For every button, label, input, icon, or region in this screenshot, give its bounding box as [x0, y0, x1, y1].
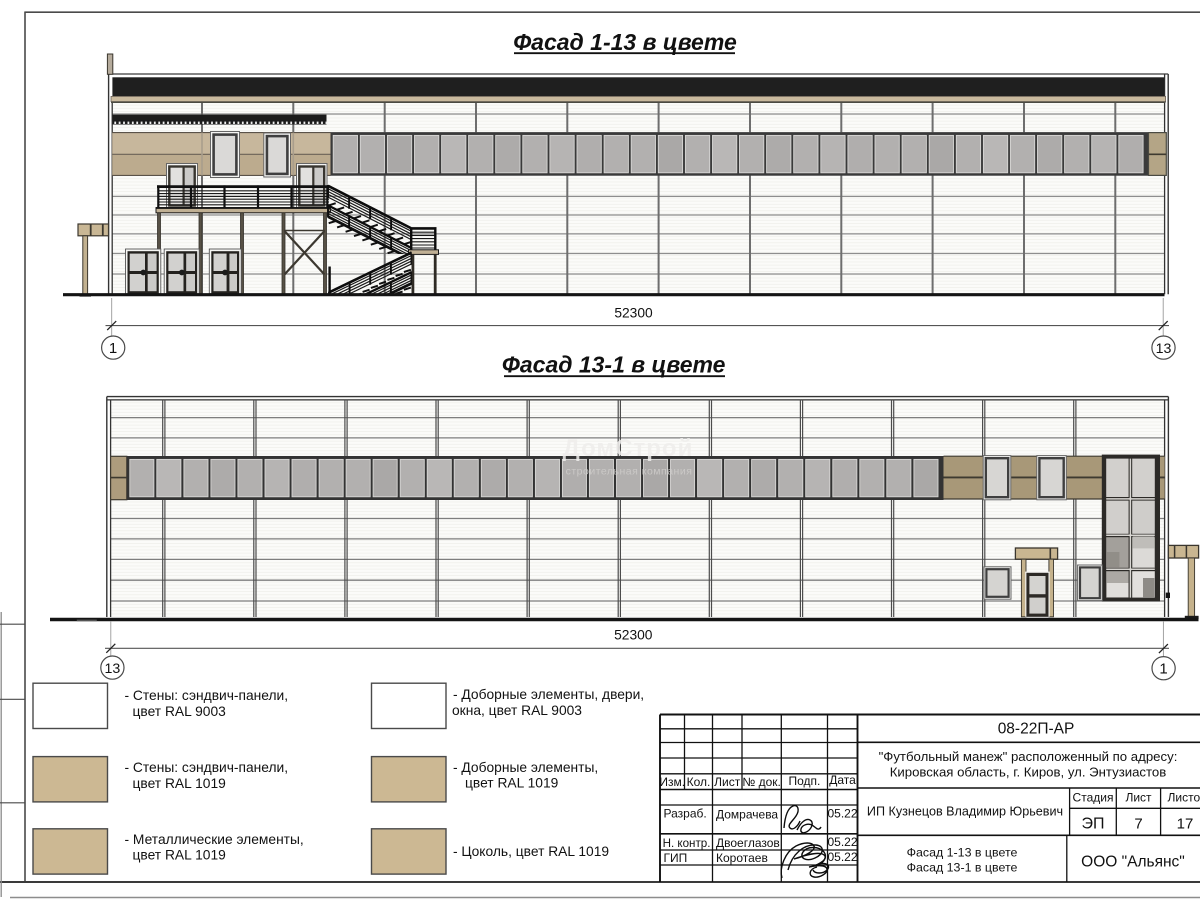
svg-text:цвет RAL 1019: цвет RAL 1019	[133, 848, 227, 863]
svg-text:Кировская область, г. Киров, у: Кировская область, г. Киров, ул. Энтузиа…	[890, 764, 1167, 779]
svg-text:- Доборные элементы, двери,: - Доборные элементы, двери,	[453, 687, 644, 702]
svg-text:05.22: 05.22	[827, 807, 857, 821]
svg-text:Фасад 1-13 в цвете: Фасад 1-13 в цвете	[513, 29, 737, 55]
svg-text:Листов: Листов	[1168, 791, 1200, 805]
svg-text:08-22П-АР: 08-22П-АР	[998, 721, 1075, 738]
svg-text:ДомСтрой: ДомСтрой	[563, 435, 694, 462]
svg-text:Н. контр.: Н. контр.	[663, 837, 711, 850]
svg-text:- Доборные элементы,: - Доборные элементы,	[453, 760, 598, 775]
svg-text:Фасад 1-13 в цвете: Фасад 1-13 в цвете	[907, 846, 1018, 860]
svg-text:Кол.: Кол.	[687, 775, 711, 789]
svg-text:05.22: 05.22	[827, 850, 857, 864]
svg-text:13: 13	[105, 661, 121, 677]
svg-text:1: 1	[109, 340, 117, 357]
svg-text:Лист: Лист	[714, 775, 741, 789]
svg-text:- Цоколь, цвет RAL 1019: - Цоколь, цвет RAL 1019	[453, 844, 609, 859]
svg-text:Коротаев: Коротаев	[716, 851, 768, 865]
svg-text:окна, цвет RAL 9003: окна, цвет RAL 9003	[452, 703, 582, 718]
svg-text:Домрачева: Домрачева	[716, 808, 778, 822]
svg-text:ГИП: ГИП	[664, 851, 688, 865]
svg-text:строительная компания: строительная компания	[566, 466, 693, 478]
svg-text:Изм.: Изм.	[659, 775, 685, 789]
svg-text:- Металлические элементы,: - Металлические элементы,	[125, 832, 304, 847]
svg-text:13: 13	[1156, 341, 1172, 357]
svg-text:- Стены: сэндвич-панели,: - Стены: сэндвич-панели,	[125, 688, 289, 703]
svg-text:ЭП: ЭП	[1082, 816, 1105, 833]
svg-text:цвет RAL 9003: цвет RAL 9003	[133, 704, 227, 719]
svg-text:"Футбольный манеж" расположенн: "Футбольный манеж" расположенный по адре…	[879, 749, 1178, 764]
svg-text:Дата: Дата	[829, 773, 856, 787]
svg-text:1: 1	[1159, 661, 1167, 678]
svg-text:52300: 52300	[614, 627, 653, 642]
svg-text:Разраб.: Разраб.	[664, 807, 707, 821]
svg-text:- Стены: сэндвич-панели,: - Стены: сэндвич-панели,	[125, 760, 289, 775]
svg-text:Лист: Лист	[1125, 791, 1152, 805]
svg-text:ООО "Альянс": ООО "Альянс"	[1081, 854, 1185, 871]
svg-text:05.22: 05.22	[827, 835, 857, 849]
svg-text:цвет RAL 1019: цвет RAL 1019	[465, 776, 559, 791]
svg-text:Двоеглазов: Двоеглазов	[716, 836, 780, 850]
svg-text:52300: 52300	[614, 306, 653, 321]
svg-text:17: 17	[1177, 816, 1194, 833]
svg-text:цвет RAL 1019: цвет RAL 1019	[133, 776, 227, 791]
svg-text:Стадия: Стадия	[1073, 791, 1114, 805]
svg-text:ИП Кузнецов Владимир Юрьевич: ИП Кузнецов Владимир Юрьевич	[867, 805, 1063, 819]
svg-text:Подп.: Подп.	[788, 774, 820, 788]
svg-text:Фасад 13-1 в цвете: Фасад 13-1 в цвете	[502, 352, 726, 378]
svg-text:№ док.: № док.	[742, 775, 780, 789]
svg-text:Фасад 13-1 в цвете: Фасад 13-1 в цвете	[907, 861, 1018, 875]
svg-text:7: 7	[1134, 816, 1142, 833]
